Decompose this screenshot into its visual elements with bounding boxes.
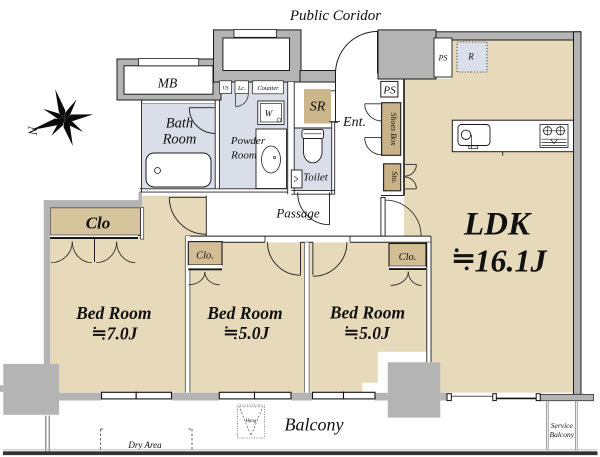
svg-text:Shoes Box: Shoes Box [389, 112, 398, 146]
svg-text:Room: Room [230, 150, 257, 162]
svg-text:R: R [467, 52, 474, 62]
svg-text:Room: Room [162, 132, 197, 148]
svg-text:Sto.: Sto. [390, 171, 399, 183]
svg-text:5.0J: 5.0J [239, 323, 271, 343]
svg-text:PS: PS [438, 54, 448, 63]
svg-text:US: US [222, 86, 229, 91]
svg-text:Passage: Passage [275, 206, 320, 221]
svg-text:Hang: Hang [244, 419, 256, 424]
svg-text:Bed Room: Bed Room [206, 303, 282, 323]
svg-text:16.1J: 16.1J [475, 243, 548, 279]
svg-text:Ent.: Ent. [342, 115, 366, 130]
svg-text:7.0J: 7.0J [107, 324, 139, 344]
svg-text:Public Coridor: Public Coridor [289, 8, 381, 24]
svg-text:5.0J: 5.0J [359, 323, 391, 343]
svg-text:Service: Service [551, 421, 574, 430]
svg-text:Powder: Powder [230, 135, 266, 147]
svg-text:Balcony: Balcony [285, 415, 344, 435]
svg-text:Bath: Bath [166, 116, 193, 132]
svg-text:Clo.: Clo. [399, 252, 417, 263]
svg-text:Toilet: Toilet [303, 172, 329, 184]
svg-text:Lc.: Lc. [237, 86, 246, 92]
svg-text:Balcony: Balcony [550, 430, 575, 439]
svg-text:LDK: LDK [463, 207, 532, 243]
svg-text:MB: MB [157, 76, 178, 91]
svg-text:Counter: Counter [257, 85, 279, 92]
svg-text:Bed Room: Bed Room [75, 303, 151, 323]
svg-text:PS: PS [382, 85, 396, 97]
svg-text:Clo: Clo [86, 214, 111, 233]
svg-text:N: N [26, 125, 41, 136]
svg-text:Dry Area: Dry Area [127, 440, 162, 450]
svg-text:SR: SR [310, 100, 326, 115]
svg-text:Clo.: Clo. [196, 251, 214, 262]
svg-text:Bed Room: Bed Room [329, 302, 405, 322]
